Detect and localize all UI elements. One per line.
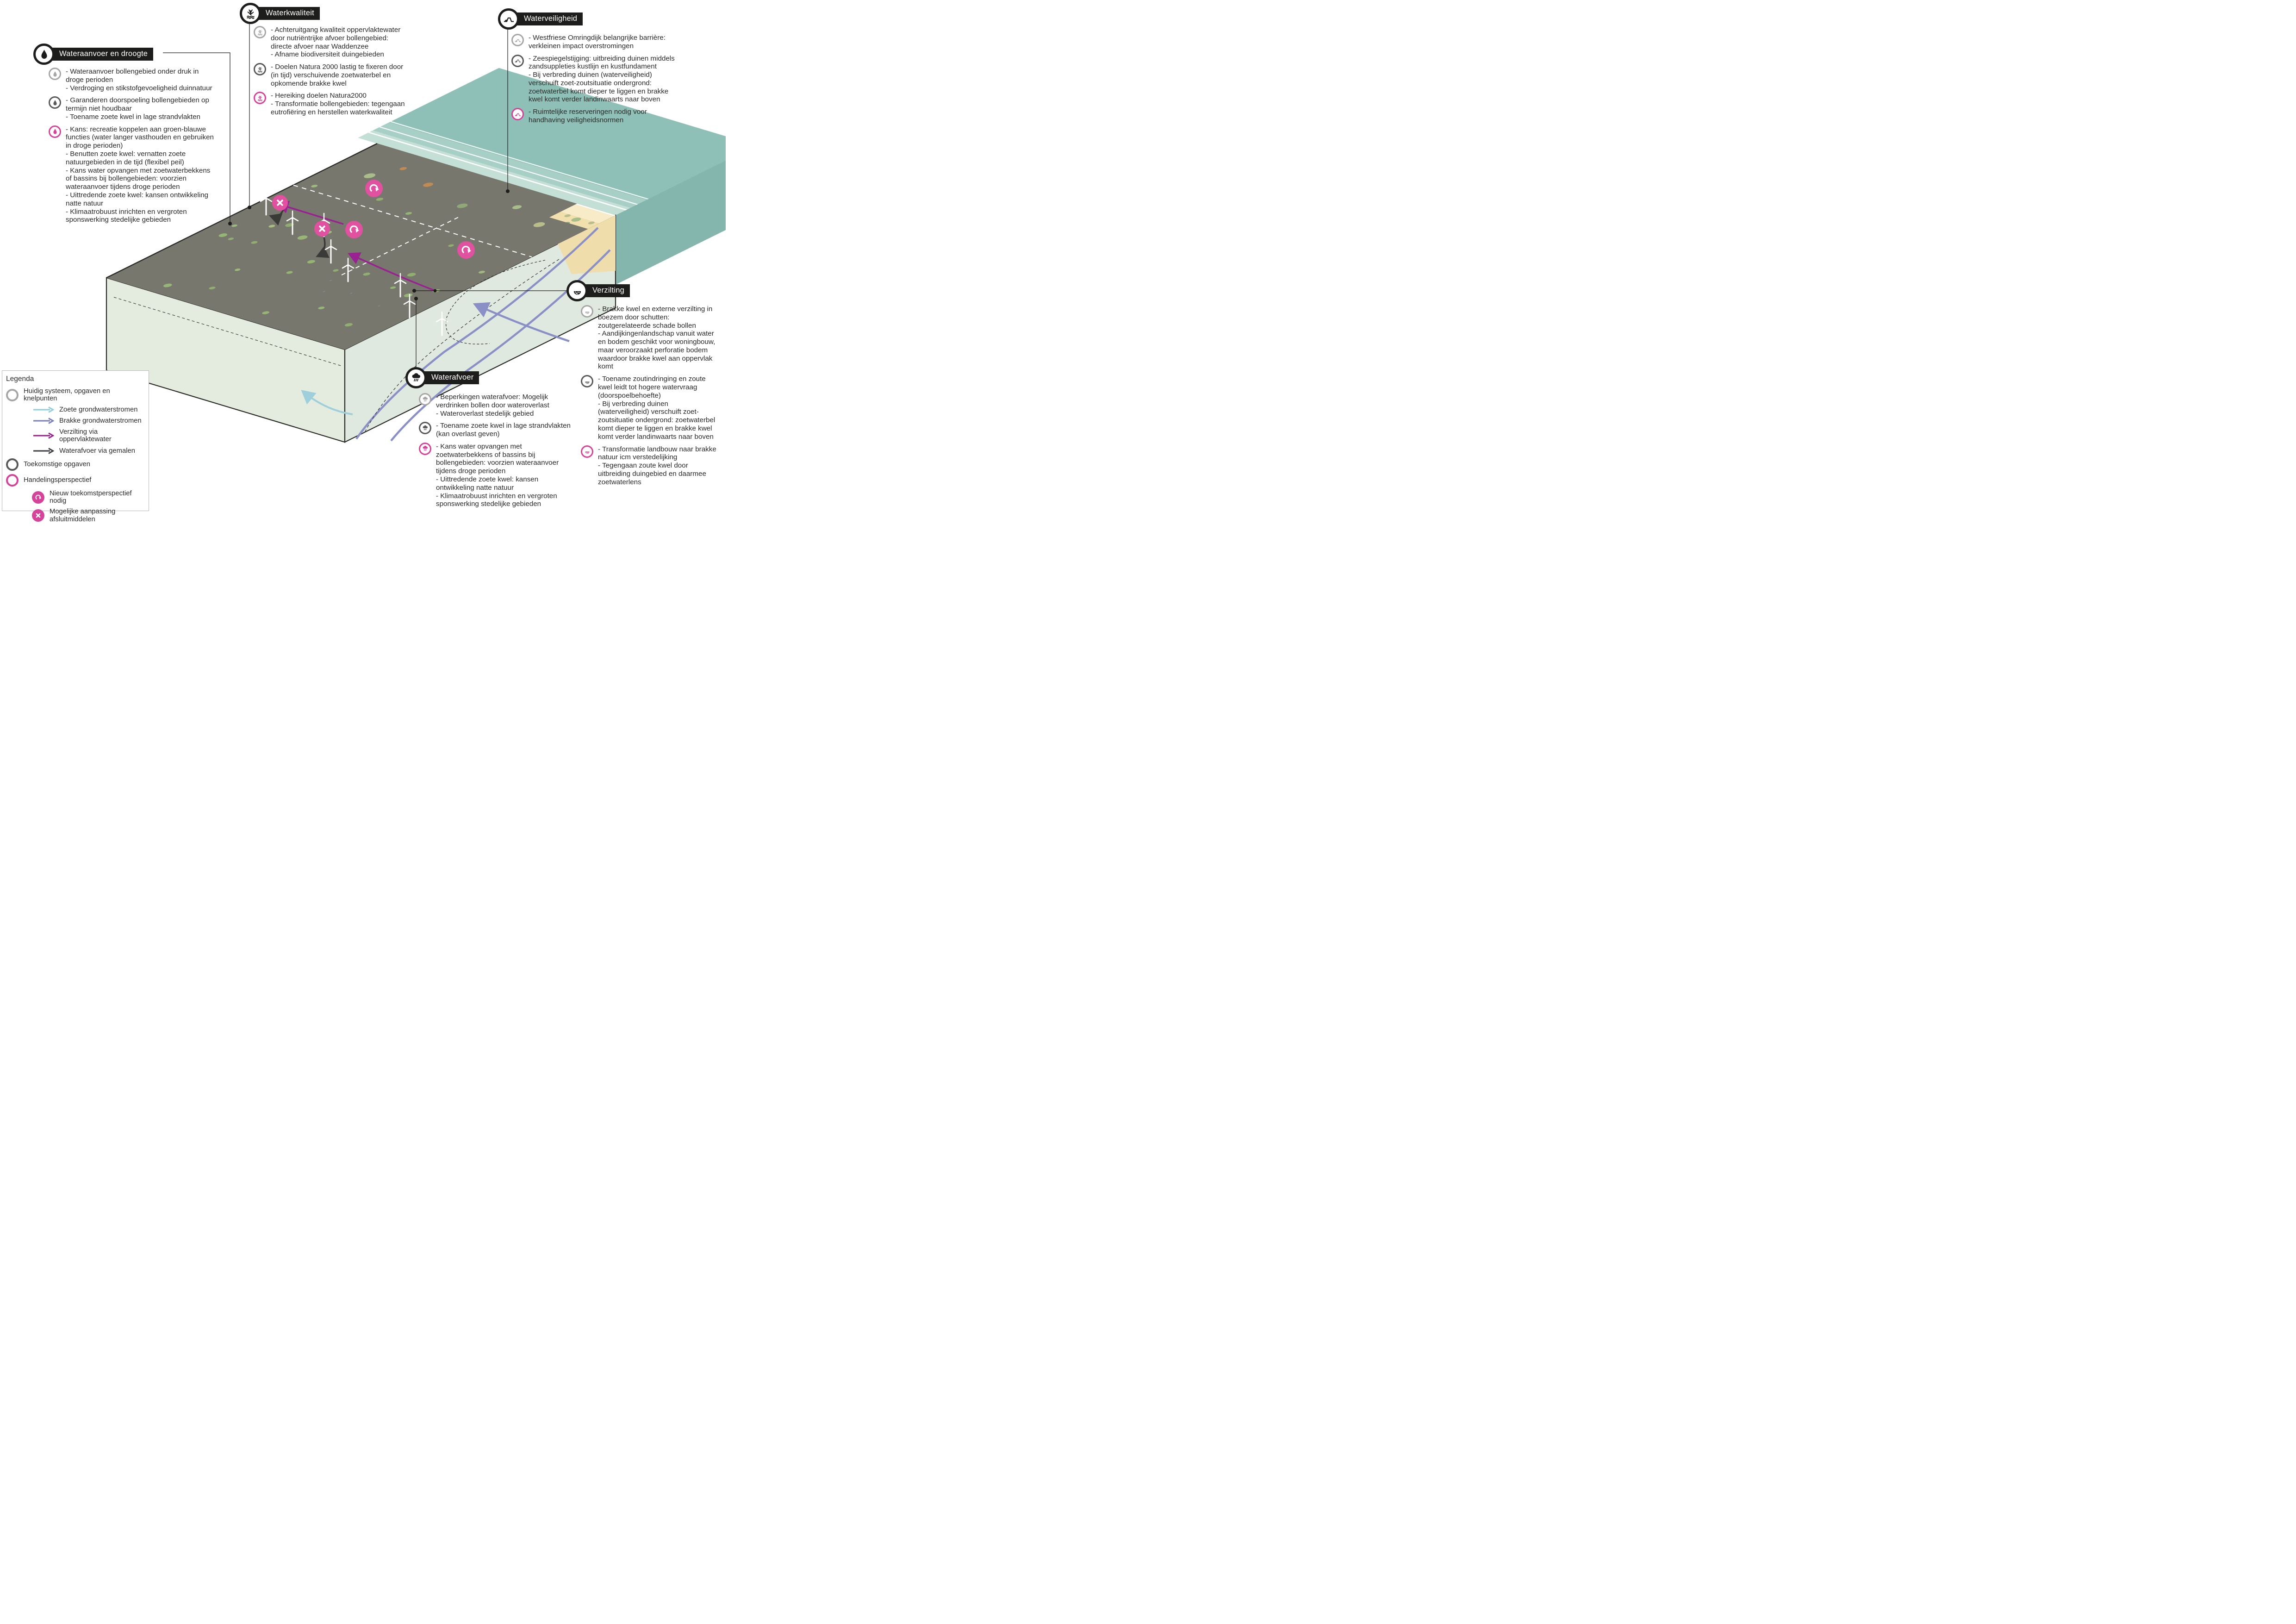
item-text: - Ruimtelijke reserveringen nodig voor h…	[529, 108, 676, 125]
item-text: - Zeespiegelstijging: uitbreiding duinen…	[529, 55, 676, 104]
topic-title: Waterveiligheid	[508, 12, 583, 25]
arrow-icon	[33, 418, 54, 424]
topic-waterafvoer: Waterafvoer - Beperkingen waterafvoer: M…	[405, 367, 577, 388]
item-text: - Wateraanvoer bollengebied onder druk i…	[66, 68, 216, 92]
item-text: - Achteruitgang kwaliteit oppervlaktewat…	[271, 26, 409, 59]
legend-item-brakke-grondwaterstromen: Brakke grondwaterstromen	[33, 417, 145, 425]
salt-icon	[581, 445, 593, 458]
legend-item-zoete-grondwaterstromen: Zoete grondwaterstromen	[33, 406, 145, 413]
legend-item-toekomstige-opgaven: Toekomstige opgaven	[6, 458, 145, 471]
salt-icon	[566, 280, 588, 301]
legend-title: Legenda	[6, 375, 145, 383]
raincloud-icon	[405, 367, 427, 388]
item-toekomst: - Toename zoete kwel in lage strandvlakt…	[419, 422, 572, 438]
raincloud-icon	[419, 422, 431, 434]
item-text: - Garanderen doorspoeling bollengebieden…	[66, 96, 216, 121]
arrow-icon	[33, 432, 54, 439]
topic-verzilting: Verzilting - Brakke kwel en externe verz…	[566, 280, 726, 301]
topic-waterkwaliteit: Waterkwaliteit - Achteruitgang kwaliteit…	[240, 3, 416, 24]
dike-icon	[511, 34, 524, 46]
item-text: - Westfriese Omringdijk belangrijke barr…	[529, 34, 676, 50]
raincloud-icon	[419, 443, 431, 455]
item-handelingsperspectief: - Hereiking doelen Natura2000 - Transfor…	[254, 92, 409, 116]
item-huidig: - Brakke kwel en externe verzilting in b…	[581, 305, 721, 371]
item-text: - Beperkingen waterafvoer: Mogelijk verd…	[436, 393, 572, 418]
legend-item-handelingsperspectief: Handelingsperspectief	[6, 474, 145, 487]
droplet-icon	[49, 125, 61, 138]
pink-ring-icon	[6, 474, 19, 487]
item-text: - Brakke kwel en externe verzilting in b…	[598, 305, 721, 371]
item-handelingsperspectief: - Transformatie landbouw naar brakke nat…	[581, 445, 721, 487]
item-toekomst: - Toename zoutindringing en zoute kwel l…	[581, 375, 721, 441]
cross-icon	[32, 509, 44, 522]
rotate-arrow-icon	[32, 491, 44, 504]
item-text: - Toename zoutindringing en zoute kwel l…	[598, 375, 721, 441]
item-text: - Kans water opvangen met zoetwaterbekke…	[436, 443, 572, 508]
marker-aanpassing-afsluitmiddel-icon	[314, 221, 330, 237]
topic-header: Waterveiligheid	[498, 8, 683, 30]
arrow-icon	[33, 448, 54, 454]
water-systeem-infographic: { "topics": [ { "id": "wateraanvoer", "t…	[0, 0, 726, 513]
item-handelingsperspectief: - Ruimtelijke reserveringen nodig voor h…	[511, 108, 676, 125]
topic-header: Verzilting	[566, 280, 726, 301]
reed-icon	[254, 92, 266, 104]
item-handelingsperspectief: - Kans water opvangen met zoetwaterbekke…	[419, 443, 572, 508]
arrow-icon	[33, 406, 54, 413]
item-text: - Kans: recreatie koppelen aan groen-bla…	[66, 125, 216, 224]
item-text: - Doelen Natura 2000 lastig te fixeren d…	[271, 63, 409, 87]
legend: Legenda Huidig systeem, opgaven en knelp…	[2, 370, 149, 511]
topic-header: Waterafvoer	[405, 367, 577, 388]
gray-ring-icon	[6, 389, 19, 401]
legend-item-verzilting-oppervlaktewater: Verzilting via oppervlaktewater	[33, 428, 145, 443]
item-huidig: - Beperkingen waterafvoer: Mogelijk verd…	[419, 393, 572, 418]
droplet-icon	[49, 96, 61, 109]
item-huidig: - Wateraanvoer bollengebied onder druk i…	[49, 68, 216, 92]
topic-wateraanvoer-en-droogte: Wateraanvoer en droogte - Wateraanvoer b…	[33, 44, 223, 65]
topic-header: Waterkwaliteit	[240, 3, 416, 24]
legend-item-huidig: Huidig systeem, opgaven en knelpunten	[6, 387, 145, 403]
dike-icon	[511, 55, 524, 67]
item-text: - Hereiking doelen Natura2000 - Transfor…	[271, 92, 409, 116]
salt-icon	[581, 375, 593, 387]
raincloud-icon	[419, 393, 431, 406]
salt-icon	[581, 305, 593, 318]
item-text: - Transformatie landbouw naar brakke nat…	[598, 445, 721, 487]
item-toekomst: - Garanderen doorspoeling bollengebieden…	[49, 96, 216, 121]
dike-icon	[498, 8, 519, 30]
marker-nieuw-toekomstperspectief-icon	[365, 180, 383, 197]
legend-badges: Nieuw toekomstperspectief nodig Mogelijk…	[32, 490, 145, 523]
item-toekomst: - Doelen Natura 2000 lastig te fixeren d…	[254, 63, 409, 87]
legend-item-aanpassing-afsluitmiddelen: Mogelijke aanpassing afsluitmiddelen	[32, 508, 145, 523]
item-handelingsperspectief: - Kans: recreatie koppelen aan groen-bla…	[49, 125, 216, 224]
legend-arrows: Zoete grondwaterstromen Brakke grondwate…	[33, 406, 145, 455]
item-text: - Toename zoete kwel in lage strandvlakt…	[436, 422, 572, 438]
dark-ring-icon	[6, 458, 19, 471]
marker-aanpassing-afsluitmiddel-icon	[272, 195, 288, 211]
marker-nieuw-toekomstperspectief-icon	[345, 221, 363, 238]
item-toekomst: - Zeespiegelstijging: uitbreiding duinen…	[511, 55, 676, 104]
dike-icon	[511, 108, 524, 120]
droplet-icon	[49, 68, 61, 80]
droplet-icon	[33, 44, 55, 65]
reed-icon	[254, 63, 266, 75]
topic-waterveiligheid: Waterveiligheid - Westfriese Omringdijk …	[498, 8, 683, 30]
topic-header: Wateraanvoer en droogte	[33, 44, 223, 65]
reed-icon	[240, 3, 261, 24]
legend-item-nieuw-toekomstperspectief: Nieuw toekomstperspectief nodig	[32, 490, 145, 505]
reed-icon	[254, 26, 266, 38]
item-huidig: - Westfriese Omringdijk belangrijke barr…	[511, 34, 676, 50]
marker-nieuw-toekomstperspectief-icon	[457, 241, 475, 259]
topic-title: Wateraanvoer en droogte	[44, 48, 153, 61]
item-huidig: - Achteruitgang kwaliteit oppervlaktewat…	[254, 26, 409, 59]
legend-item-waterafvoer-gemalen: Waterafvoer via gemalen	[33, 447, 145, 455]
